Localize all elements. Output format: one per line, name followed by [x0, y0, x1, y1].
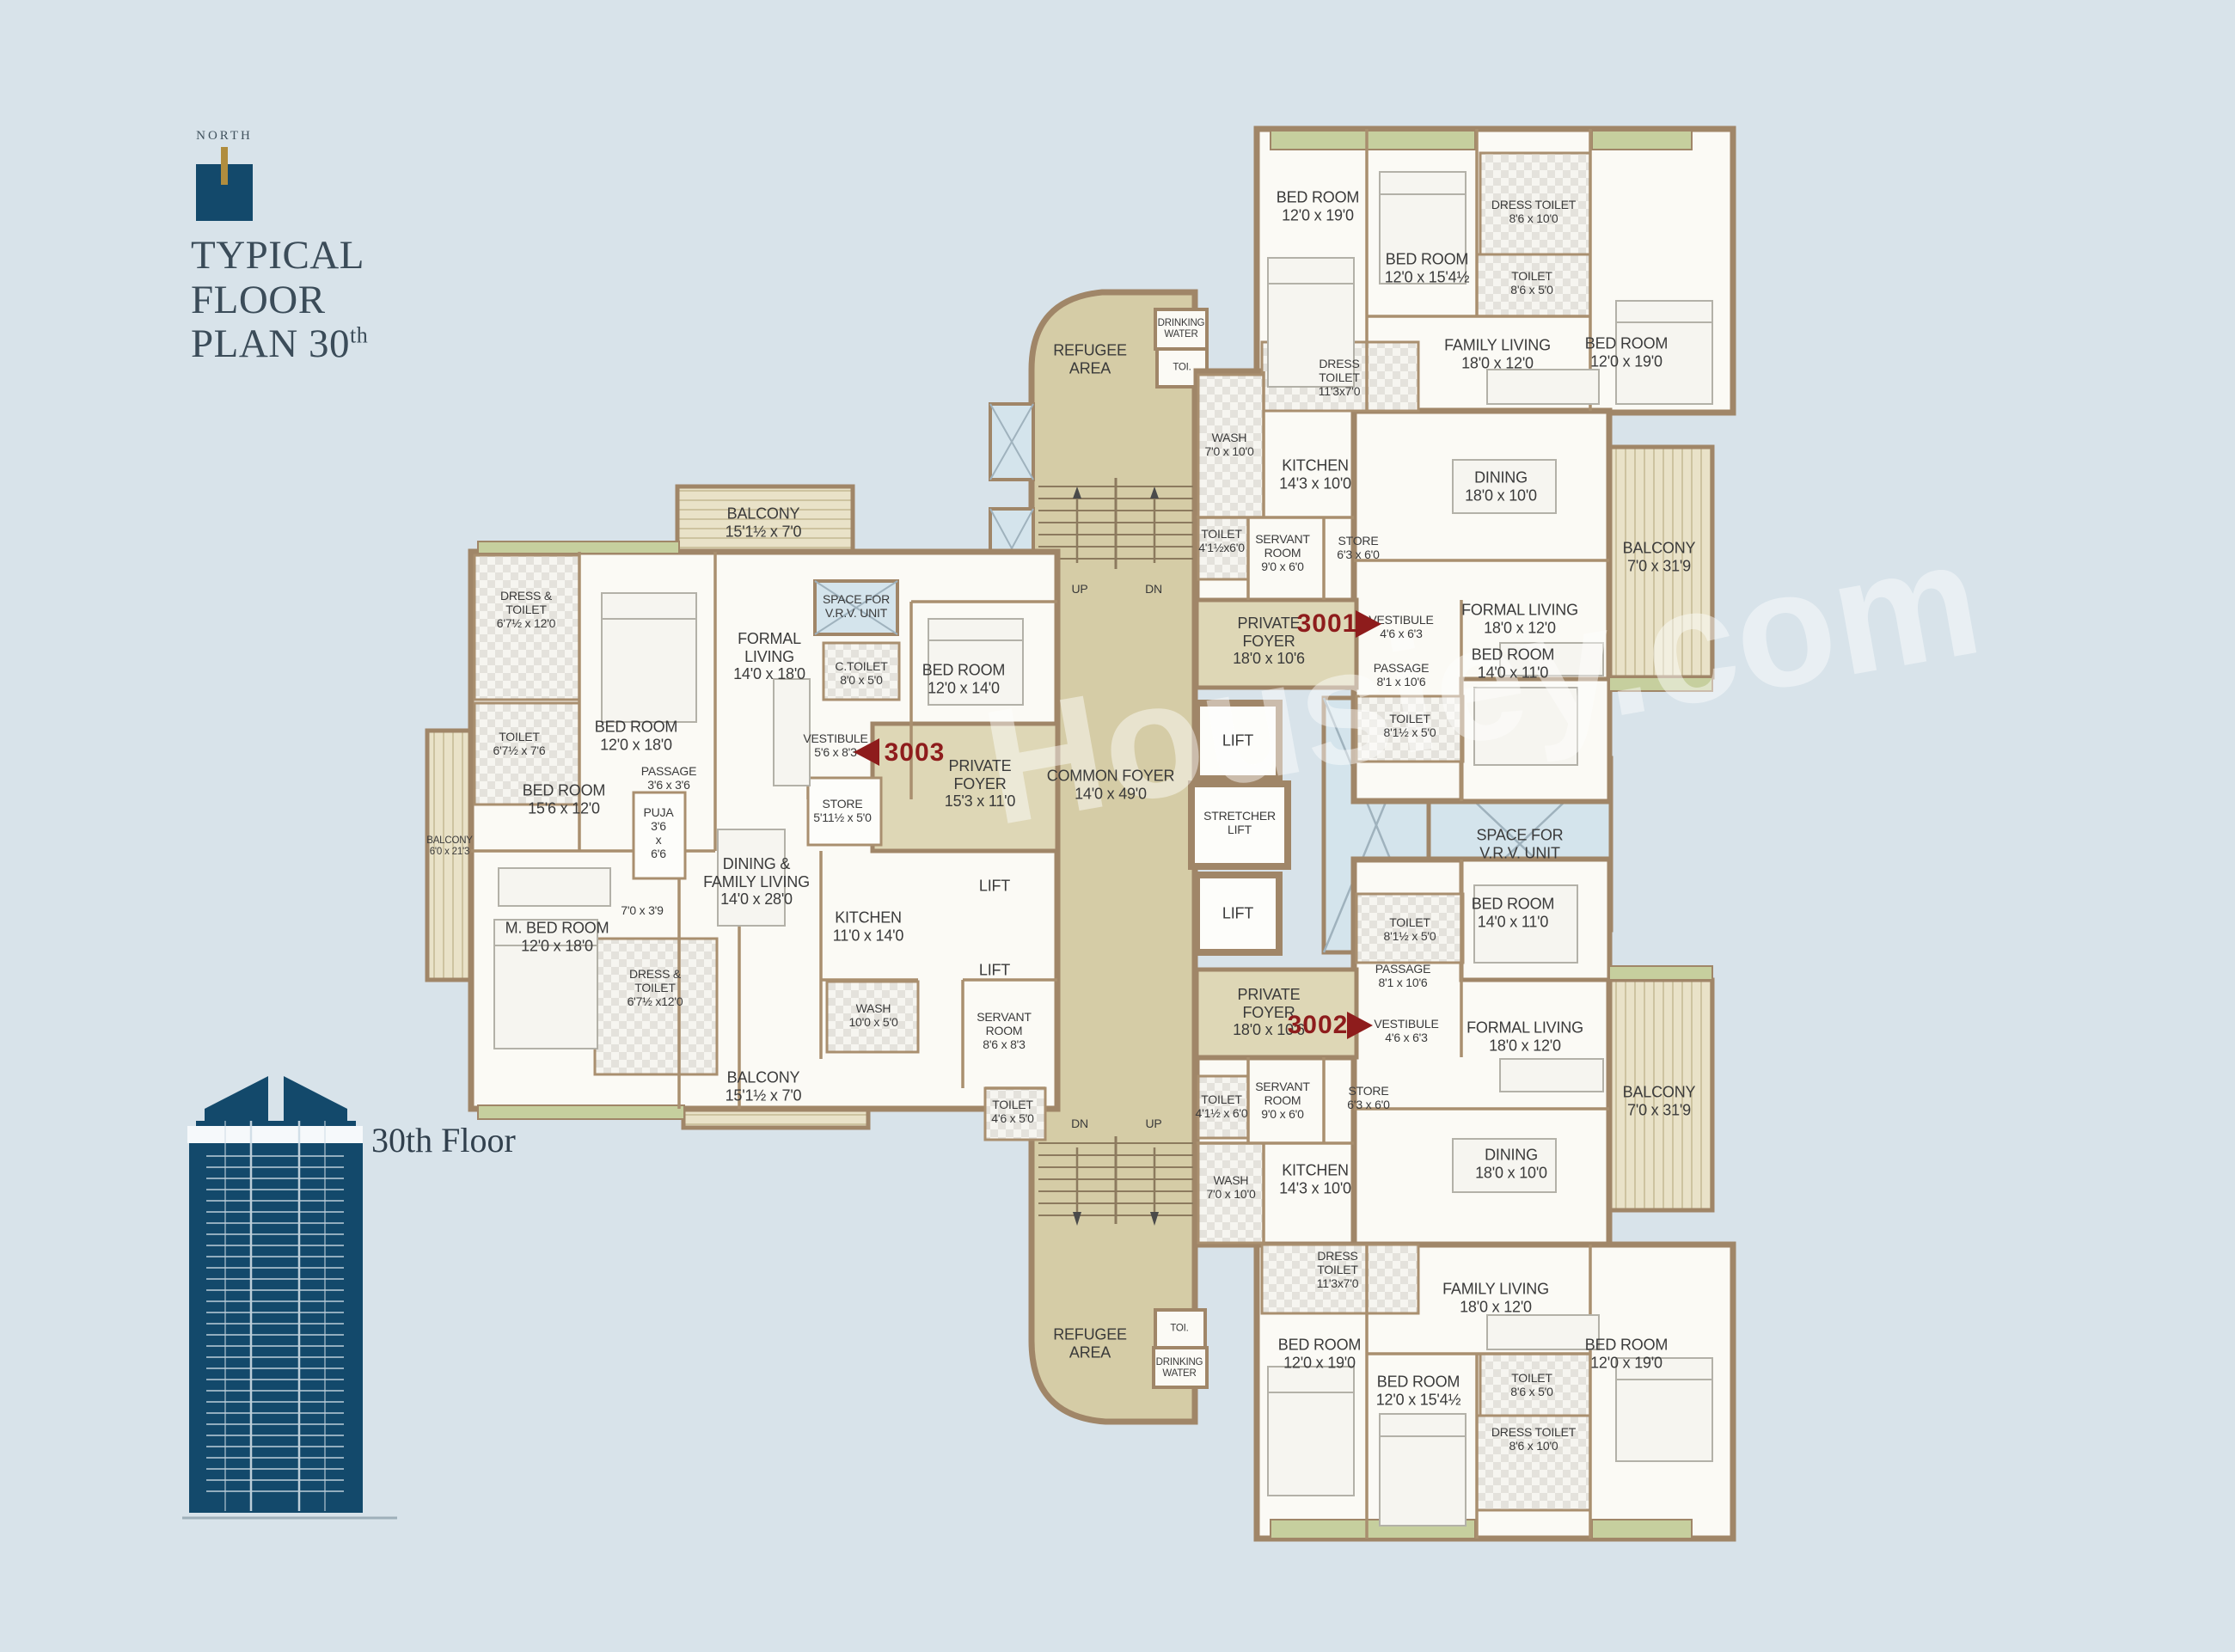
- room-label: BED ROOM 12'0 x 15'4½: [1385, 250, 1470, 285]
- room-label: DRESS & TOILET 6'7½ x12'0: [628, 968, 683, 1009]
- room-label: PASSAGE 8'1 x 10'6: [1375, 963, 1430, 990]
- room-label: REFUGEE AREA: [1053, 1325, 1127, 1361]
- room-label: DINING 18'0 x 10'0: [1475, 1146, 1547, 1181]
- page-title: TYPICAL FLOOR PLAN 30th: [191, 234, 368, 367]
- room-label: UP: [1071, 583, 1087, 597]
- room-label: LIFT: [1222, 732, 1253, 750]
- room-label: DRESS & TOILET 6'7½ x 12'0: [497, 590, 556, 631]
- room-label: BED ROOM 14'0 x 11'0: [1472, 646, 1554, 681]
- room-label: FORMAL LIVING 18'0 x 12'0: [1461, 601, 1578, 636]
- room-label: DRINKING WATER: [1158, 318, 1205, 340]
- entry-arrow-3003: [854, 738, 879, 766]
- room-label: DN: [1145, 583, 1162, 597]
- room-label: BED ROOM 12'0 x 18'0: [595, 718, 677, 753]
- room-label: DRINKING WATER: [1156, 1357, 1203, 1380]
- room-label: DINING 18'0 x 10'0: [1465, 468, 1537, 504]
- room-label: BED ROOM 12'0 x 14'0: [922, 661, 1005, 696]
- room-label: BED ROOM 12'0 x 19'0: [1585, 334, 1668, 370]
- room-label: STRETCHER LIFT: [1203, 810, 1276, 837]
- room-label: WASH 10'0 x 5'0: [848, 1002, 897, 1030]
- room-label: LIFT: [979, 962, 1010, 980]
- room-label: BED ROOM 15'6 x 12'0: [523, 781, 605, 817]
- north-pin-icon: [221, 147, 228, 185]
- room-label: BED ROOM 14'0 x 11'0: [1472, 895, 1554, 930]
- room-label: KITCHEN 11'0 x 14'0: [833, 909, 903, 944]
- room-label: SERVANT ROOM 9'0 x 6'0: [1255, 533, 1309, 574]
- room-label: FAMILY LIVING 18'0 x 12'0: [1442, 1280, 1549, 1315]
- room-label: BALCONY 15'1½ x 7'0: [726, 505, 802, 540]
- room-label: BALCONY 15'1½ x 7'0: [726, 1068, 802, 1104]
- room-label: BED ROOM 12'0 x 19'0: [1277, 188, 1359, 223]
- room-label: DRESS TOILET 8'6 x 10'0: [1491, 1426, 1576, 1453]
- room-label: TOILET 4'1½x6'0: [1198, 528, 1245, 555]
- room-label: BALCONY 7'0 x 31'9: [1623, 539, 1696, 574]
- room-label: BED ROOM 12'0 x 15'4½: [1376, 1373, 1461, 1408]
- title-line-1: TYPICAL: [191, 234, 368, 278]
- room-label: FORMAL LIVING 14'0 x 18'0: [733, 630, 805, 683]
- room-label: BED ROOM 12'0 x 19'0: [1278, 1336, 1361, 1371]
- room-label: M. BED ROOM 12'0 x 18'0: [505, 919, 609, 954]
- unit-number-3001: 3001: [1297, 609, 1358, 639]
- room-label: KITCHEN 14'3 x 10'0: [1279, 456, 1351, 492]
- room-label: STORE 6'3 x 6'0: [1337, 535, 1379, 562]
- room-label: PASSAGE 8'1 x 10'6: [1374, 662, 1429, 689]
- room-label: FORMAL LIVING 18'0 x 12'0: [1467, 1019, 1583, 1054]
- room-label: BED ROOM 12'0 x 19'0: [1585, 1336, 1668, 1371]
- room-label: 7'0 x 3'9: [621, 904, 663, 918]
- room-label: LIFT: [979, 878, 1010, 896]
- room-label: LIFT: [1222, 905, 1253, 923]
- room-label: SERVANT ROOM 8'6 x 8'3: [977, 1011, 1031, 1052]
- floor-caption: 30th Floor: [371, 1120, 516, 1160]
- room-label: SPACE FOR V.R.V. UNIT: [1477, 826, 1564, 861]
- entry-arrow-3001: [1356, 610, 1381, 638]
- room-label: DN: [1071, 1117, 1088, 1131]
- room-label: TOI.: [1173, 362, 1191, 373]
- north-indicator: NORTH: [196, 129, 253, 221]
- room-label: KITCHEN 14'3 x 10'0: [1279, 1161, 1351, 1196]
- unit-number-3003: 3003: [885, 738, 946, 768]
- room-label: STORE 5'11½ x 5'0: [813, 798, 872, 825]
- room-label: PUJA 3'6 x 6'6: [644, 806, 674, 861]
- title-superscript: th: [350, 323, 368, 348]
- room-label: TOILET 4'1½ x 6'0: [1196, 1093, 1248, 1121]
- room-label: DRESS TOILET 11'3x7'0: [1319, 358, 1361, 399]
- room-label: PRIVATE FOYER 18'0 x 10'6: [1233, 615, 1305, 668]
- room-label: WASH 7'0 x 10'0: [1204, 431, 1253, 459]
- room-label: DINING & FAMILY LIVING 14'0 x 28'0: [703, 855, 810, 909]
- floor-plan-page: Housiey.com NORTH TYPICAL FLOOR PLAN 30t…: [0, 0, 2235, 1652]
- title-line-2: FLOOR: [191, 278, 368, 323]
- room-label: TOILET 4'6 x 5'0: [991, 1098, 1033, 1126]
- room-label: TOILET 8'6 x 5'0: [1510, 270, 1552, 297]
- room-label: BALCONY 7'0 x 31'9: [1623, 1083, 1696, 1118]
- room-label: DRESS TOILET 11'3x7'0: [1317, 1250, 1359, 1291]
- room-label: WASH 7'0 x 10'0: [1206, 1174, 1255, 1202]
- room-label: SERVANT ROOM 9'0 x 6'0: [1255, 1080, 1309, 1122]
- room-label: VESTIBULE 4'6 x 6'3: [1374, 1018, 1438, 1045]
- room-label: COMMON FOYER 14'0 x 49'0: [1047, 767, 1175, 802]
- room-label: TOILET 6'7½ x 7'6: [493, 731, 546, 758]
- room-label: STORE 6'3 x 6'0: [1347, 1085, 1389, 1112]
- title-line-3-text: PLAN 30: [191, 321, 350, 366]
- room-label: PRIVATE FOYER 15'3 x 11'0: [945, 757, 1015, 811]
- room-label: DRESS TOILET 8'6 x 10'0: [1491, 199, 1576, 226]
- north-label: NORTH: [196, 129, 253, 144]
- room-label: BALCONY 6'0 x 21'3: [426, 835, 473, 858]
- entry-arrow-3002: [1347, 1012, 1373, 1039]
- title-line-3: PLAN 30th: [191, 322, 368, 367]
- room-label: FAMILY LIVING 18'0 x 12'0: [1444, 336, 1551, 371]
- room-label: SPACE FOR V.R.V. UNIT: [823, 593, 890, 621]
- room-label: TOILET 8'1½ x 5'0: [1384, 916, 1436, 944]
- room-label: PASSAGE 3'6 x 3'6: [641, 765, 696, 792]
- room-label: UP: [1145, 1117, 1161, 1131]
- room-label: REFUGEE AREA: [1053, 341, 1127, 376]
- room-label: C.TOILET 8'0 x 5'0: [835, 660, 887, 688]
- room-label: TOILET 8'1½ x 5'0: [1384, 713, 1436, 740]
- unit-number-3002: 3002: [1288, 1011, 1349, 1040]
- room-label: TOILET 8'6 x 5'0: [1510, 1372, 1552, 1399]
- room-label: TOI.: [1170, 1323, 1188, 1334]
- north-box: [196, 164, 253, 221]
